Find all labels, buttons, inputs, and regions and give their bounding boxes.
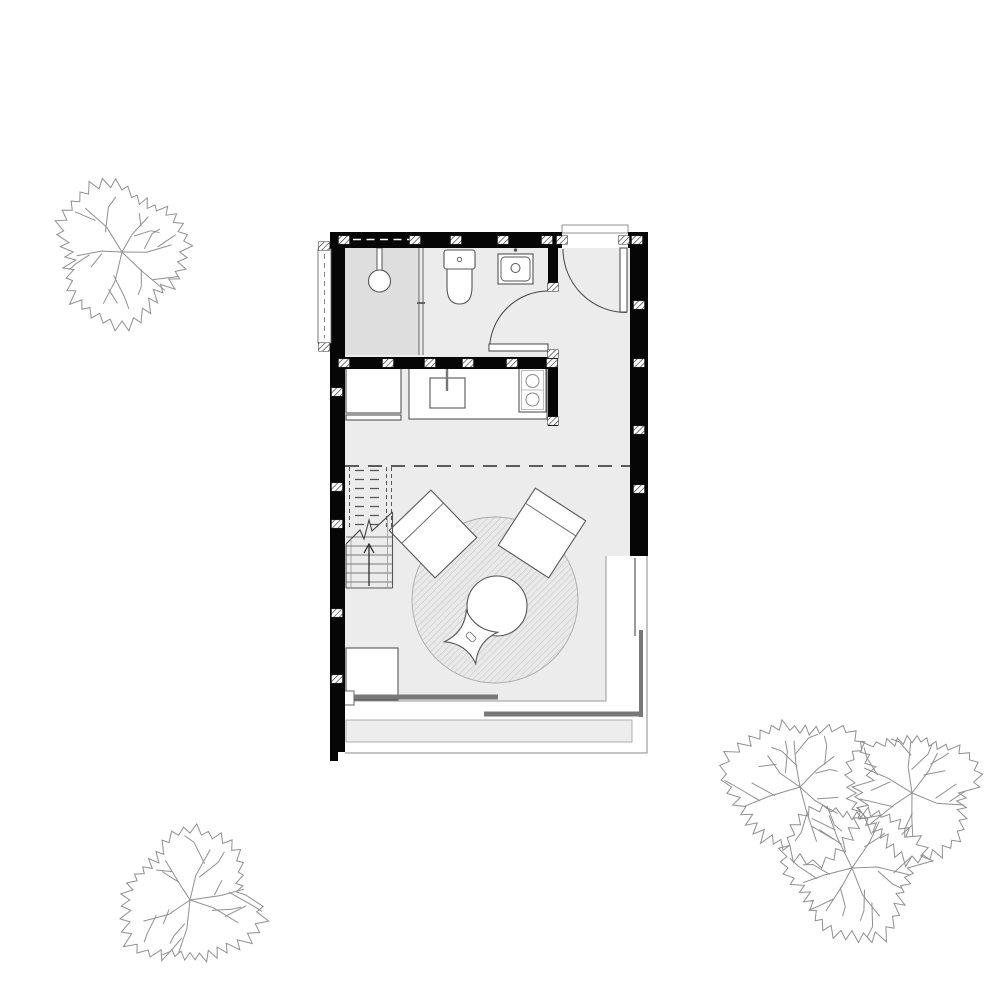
wall-hatch-tick xyxy=(463,359,474,367)
wall-hatch-tick xyxy=(332,520,343,528)
wall-hatch-tick xyxy=(507,359,518,367)
wall-hatch-tick xyxy=(332,388,343,396)
kitchen-appliance xyxy=(346,368,401,413)
wall-hatch-tick xyxy=(632,236,643,244)
floor-plan-drawing xyxy=(0,0,1007,1000)
wall-hatch-tick xyxy=(498,236,509,244)
entry-threshold xyxy=(562,225,628,233)
deck-strip xyxy=(346,720,632,742)
wall-hatch-tick xyxy=(542,236,553,244)
wall-hatch-tick xyxy=(619,236,630,244)
tree-symbol xyxy=(779,805,934,942)
wall-hatch-tick xyxy=(339,236,350,244)
left-window xyxy=(318,249,331,343)
cooktop xyxy=(519,368,546,412)
wall-hatch-tick xyxy=(634,301,645,309)
wall-hatch-tick xyxy=(339,359,350,367)
wall-hatch-tick xyxy=(319,242,330,250)
wall-hatch-tick xyxy=(425,359,436,367)
wall-hatch-tick xyxy=(634,426,645,434)
wall-hatch-tick xyxy=(383,359,394,367)
wall-hatch-tick xyxy=(547,359,558,367)
tree-symbol xyxy=(845,736,983,867)
slider-handle xyxy=(344,691,354,705)
wall-hatch-tick xyxy=(451,236,462,244)
faucet-dot xyxy=(514,248,517,251)
toilet xyxy=(444,250,475,304)
washbasin xyxy=(498,248,533,284)
wall-hatch-tick xyxy=(319,343,330,351)
wall-hatch-tick xyxy=(332,483,343,491)
wall-hatch-tick xyxy=(548,417,559,425)
wall-hatch-tick xyxy=(548,350,559,358)
wall-hatch-tick xyxy=(332,609,343,617)
wall-hatch-tick xyxy=(332,675,343,683)
wall-hatch-tick xyxy=(634,485,645,493)
tree-symbol xyxy=(720,720,876,868)
kitchen xyxy=(346,366,547,420)
wall-hatch-tick xyxy=(548,283,559,291)
tree-symbol xyxy=(55,179,193,331)
tree-symbol xyxy=(120,824,269,962)
wall-hatch-tick xyxy=(634,359,645,367)
floor-plan-sheet xyxy=(0,0,1007,1000)
wall-hatch-tick xyxy=(410,236,421,244)
appliance-handle xyxy=(346,415,401,420)
wall-hatch-tick xyxy=(557,236,568,244)
